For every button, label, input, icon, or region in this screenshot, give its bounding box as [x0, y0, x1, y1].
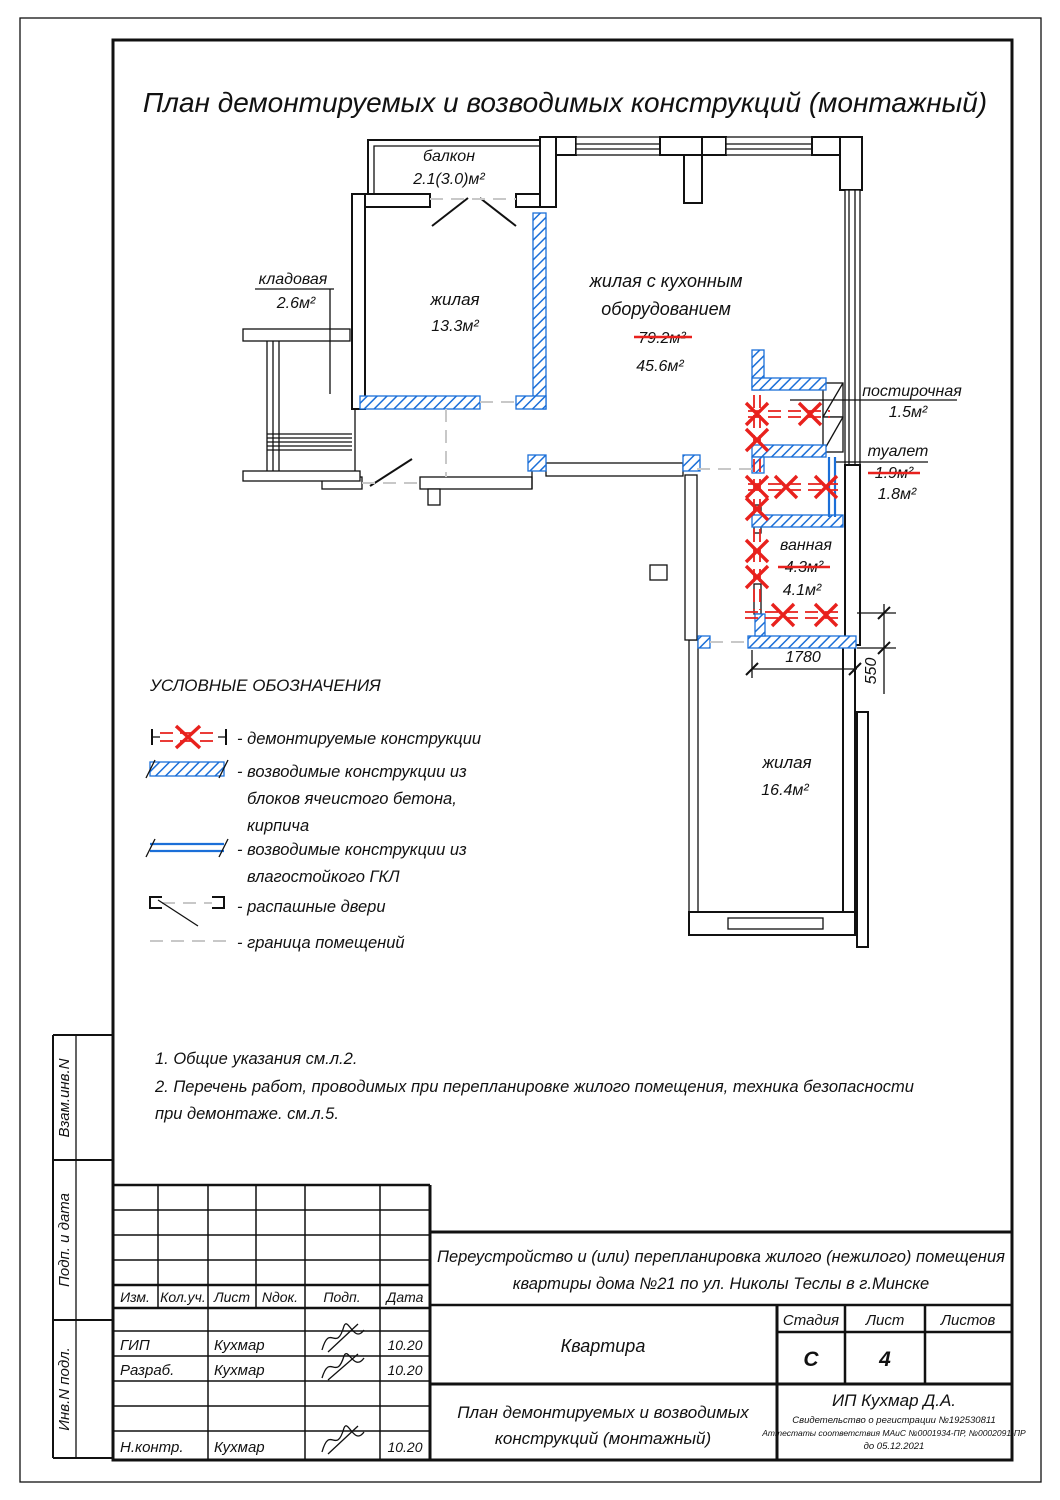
room-label-balcony: балкон [423, 148, 475, 165]
company-cert2: Аттестаты соответствия МАиС №0001934-ПР,… [761, 1428, 1026, 1438]
object-name: Квартира [561, 1336, 646, 1356]
legend-item-blocks-line3: кирпича [247, 817, 309, 835]
titleblock-header-row: Изм. Кол.уч. Лист Nдок. Подп. Дата [120, 1289, 424, 1305]
room-area-toilet-new: 1.8м² [878, 486, 917, 503]
notes: 1. Общие указания см.л.2. 2. Перечень ра… [154, 1050, 914, 1123]
legend-item-gkl-line1: - возводимые конструкции из [237, 841, 467, 859]
col-koluch: Кол.уч. [160, 1289, 206, 1305]
legend-title: УСЛОВНЫЕ ОБОЗНАЧЕНИЯ [149, 676, 381, 695]
row-gip-role: ГИП [120, 1337, 150, 1354]
room-label-bathroom: ванная [780, 537, 832, 554]
room-label-kitchen-line1: жилая с кухонным [589, 271, 743, 291]
sheet-value: 4 [878, 1348, 891, 1371]
col-list: Лист [213, 1289, 250, 1305]
col-data: Дата [385, 1289, 424, 1305]
sidebar-stamps: Взам.инв.N Подп. и дата Инв.N подл. [53, 1035, 113, 1458]
room-area-kitchen-new: 45.6м² [636, 358, 684, 375]
title-block: Изм. Кол.уч. Лист Nдок. Подп. Дата ГИП К… [113, 1185, 1026, 1460]
company-cert3: до 05.12.2021 [864, 1441, 925, 1452]
legend-symbol-gkl [146, 839, 228, 857]
doc-title-line2: конструкций (монтажный) [495, 1429, 711, 1448]
legend-item-boundary: - граница помещений [237, 934, 405, 952]
room-area-laundry: 1.5м² [889, 404, 928, 421]
legend-item-blocks-line1: - возводимые конструкции из [237, 763, 467, 781]
col-ndok: Nдок. [262, 1289, 298, 1305]
doc-title-line1: План демонтируемых и возводимых [457, 1403, 749, 1422]
legend-item-doors: - распашные двери [237, 898, 386, 916]
sheets-label: Листов [940, 1312, 996, 1329]
titleblock-signature-rows: ГИП Кухмар 10.20 Разраб. Кухмар 10.20 Н.… [120, 1324, 423, 1456]
walls-existing [243, 137, 868, 947]
row-nkontr-name: Кухмар [214, 1439, 265, 1456]
stage-sheet-cells: Стадия Лист Листов С 4 [783, 1312, 996, 1371]
room-label-toilet: туалет [868, 443, 929, 460]
room-area-living1: 13.3м² [431, 318, 479, 335]
row-razrab-date: 10.20 [387, 1362, 422, 1378]
col-izm: Изм. [120, 1289, 150, 1305]
note-line1: 1. Общие указания см.л.2. [155, 1050, 357, 1068]
drawing-canvas: План демонтируемых и возводимых конструк… [0, 0, 1060, 1500]
sidebar-label-inv: Инв.N подл. [56, 1347, 73, 1431]
stage-label: Стадия [783, 1312, 839, 1329]
sheet-title: План демонтируемых и возводимых конструк… [143, 87, 987, 118]
row-gip-date: 10.20 [387, 1337, 422, 1353]
company-name: ИП Кухмар Д.А. [832, 1391, 956, 1410]
row-razrab-role: Разраб. [120, 1362, 174, 1379]
room-area-living2: 16.4м² [761, 782, 809, 799]
room-label-laundry: постирочная [862, 383, 962, 400]
drawing-sheet: План демонтируемых и возводимых конструк… [0, 0, 1060, 1500]
project-name-line1: Переустройство и (или) перепланировка жи… [437, 1248, 1005, 1266]
legend-symbol-demolish [152, 726, 226, 748]
row-gip-name: Кухмар [214, 1337, 265, 1354]
sidebar-label-podp: Подп. и дата [56, 1193, 73, 1287]
project-name-line2: квартиры дома №21 по ул. Николы Теслы в … [513, 1275, 929, 1293]
company-cert1: Свидетельство о регистрации №192530811 [792, 1415, 995, 1426]
legend: УСЛОВНЫЕ ОБОЗНАЧЕНИЯ - демонтируемые кон… [146, 676, 481, 952]
signatures [322, 1324, 364, 1454]
dimension-1780: 1780 [785, 649, 821, 666]
legend-symbol-doors [150, 897, 224, 926]
legend-symbol-blocks [146, 760, 228, 778]
note-line3: при демонтаже. см.л.5. [155, 1105, 339, 1123]
room-area-balcony: 2.1(3.0)м² [412, 171, 485, 188]
legend-item-gkl-line2: влагостойкого ГКЛ [247, 868, 400, 886]
row-nkontr-role: Н.контр. [120, 1439, 184, 1456]
col-podp: Подп. [323, 1289, 360, 1305]
door-swing-lines [370, 198, 516, 486]
room-label-storage: кладовая [259, 271, 328, 288]
row-razrab-name: Кухмар [214, 1362, 265, 1379]
row-nkontr-date: 10.20 [387, 1439, 422, 1455]
company-cell: ИП Кухмар Д.А. Свидетельство о регистрац… [761, 1391, 1026, 1452]
floor-plan: 1780 550 балкон 2.1(3.0)м² жилая 13.3м² … [243, 137, 962, 947]
walls-new-gkl [829, 457, 835, 517]
sheet-label: Лист [865, 1312, 905, 1329]
sidebar-label-vzam: Взам.инв.N [56, 1058, 73, 1137]
room-area-kitchen-old: 79.2м² [638, 330, 686, 347]
dimension-550: 550 [863, 658, 880, 685]
room-area-bathroom-new: 4.1м² [783, 582, 822, 599]
legend-item-blocks-line2: блоков ячеистого бетона, [247, 790, 457, 808]
room-label-living2: жилая [761, 753, 811, 772]
stage-value: С [803, 1348, 819, 1371]
room-label-living1: жилая [429, 290, 479, 309]
legend-item-demolish: - демонтируемые конструкции [237, 730, 481, 748]
room-label-kitchen-line2: оборудованием [601, 299, 731, 319]
room-area-storage: 2.6м² [276, 295, 316, 312]
note-line2: 2. Перечень работ, проводимых при перепл… [154, 1078, 914, 1096]
